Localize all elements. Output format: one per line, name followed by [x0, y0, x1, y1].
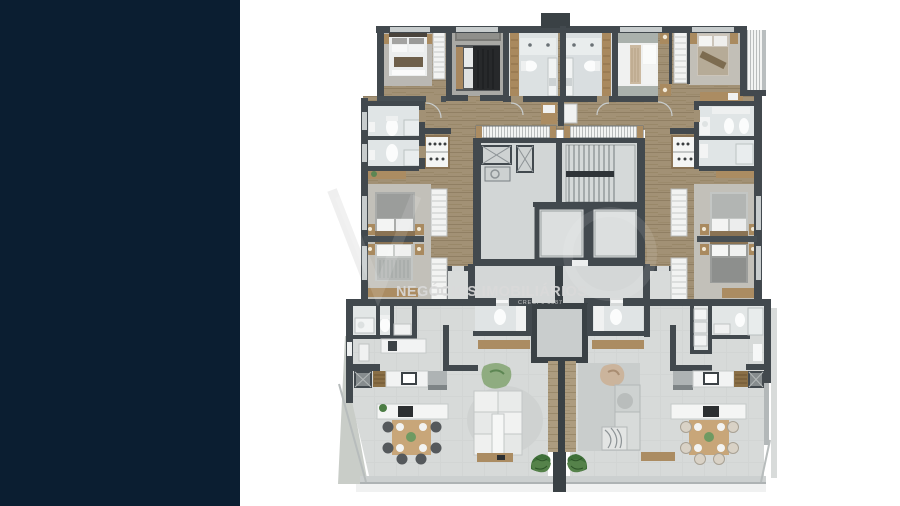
svg-text:NEGÓCIOS IMOBILIÁRIOS: NEGÓCIOS IMOBILIÁRIOS	[396, 282, 587, 300]
svg-text:CRECI J 5087: CRECI J 5087	[518, 300, 563, 306]
